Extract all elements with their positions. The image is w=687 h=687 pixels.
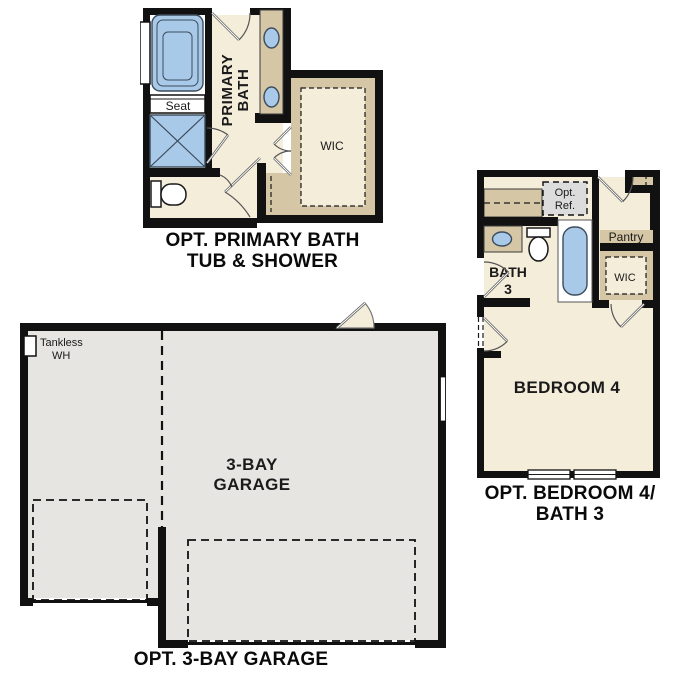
wall-segment bbox=[143, 168, 220, 177]
wall-segment bbox=[375, 70, 383, 223]
wall-segment bbox=[143, 8, 212, 15]
wall-segment bbox=[592, 177, 599, 302]
caption-line: OPT. PRIMARY BATH bbox=[135, 230, 390, 251]
toilet-tank bbox=[527, 228, 550, 237]
garage-door-threshold bbox=[188, 642, 415, 645]
wall-segment bbox=[20, 323, 28, 606]
toilet bbox=[151, 181, 186, 207]
caption-line: OPT. 3-BAY GARAGE bbox=[30, 649, 432, 670]
wic-shelf-ext bbox=[266, 173, 291, 215]
sink bbox=[264, 87, 279, 107]
wall-segment bbox=[650, 193, 660, 231]
caption-line: OPT. BEDROOM 4/ bbox=[470, 483, 670, 504]
toilet-tank bbox=[151, 181, 161, 207]
tankless-label-line2: WH bbox=[52, 350, 70, 362]
toilet-bowl bbox=[529, 237, 548, 261]
opt-ref-label-line2: Ref. bbox=[555, 200, 575, 212]
wall-segment bbox=[600, 243, 660, 252]
house-entry-door-swing bbox=[337, 303, 374, 328]
wall-segment bbox=[20, 598, 33, 606]
garage-bay-floor bbox=[27, 330, 162, 598]
opt-ref: Opt. Ref. bbox=[543, 182, 587, 215]
wall-segment bbox=[477, 170, 484, 258]
wall-segment bbox=[438, 323, 446, 648]
garage-main-floor bbox=[160, 330, 442, 640]
garage-label-line2: GARAGE bbox=[213, 475, 290, 494]
wall-segment bbox=[20, 323, 446, 331]
bath3-toilet bbox=[527, 228, 550, 261]
primary-bath-label-line2: BATH bbox=[235, 69, 252, 112]
wall-segment bbox=[158, 640, 188, 648]
tub bbox=[563, 227, 587, 295]
floorplan-canvas: Seat bbox=[0, 0, 687, 687]
shower bbox=[150, 115, 205, 167]
primary-bath-plan: Seat bbox=[140, 5, 390, 230]
wall-segment bbox=[592, 300, 609, 308]
bath3-tub bbox=[558, 220, 592, 302]
garage-label-line1: 3-BAY bbox=[226, 455, 278, 474]
tankless-box bbox=[24, 336, 36, 356]
wall-segment bbox=[484, 351, 501, 358]
garage-caption: OPT. 3-BAY GARAGE bbox=[30, 649, 432, 670]
bedroom4-bath3-plan: Opt. Ref. Pantry bbox=[470, 165, 665, 485]
primary-bath-caption: OPT. PRIMARY BATH TUB & SHOWER bbox=[135, 230, 390, 272]
wall-segment bbox=[283, 8, 291, 120]
pantry-label: Pantry bbox=[609, 230, 644, 244]
bath3-label-line2: 3 bbox=[504, 281, 512, 297]
wall-segment bbox=[257, 215, 383, 223]
bedroom4-label: BEDROOM 4 bbox=[514, 378, 621, 397]
bath3-sink bbox=[484, 226, 522, 252]
wall-segment bbox=[642, 300, 660, 308]
wall-segment bbox=[477, 217, 558, 226]
garage-door-threshold bbox=[33, 600, 147, 603]
wall-segment bbox=[257, 163, 266, 219]
caption-line: TUB & SHOWER bbox=[135, 251, 390, 272]
primary-bath-label-line1: PRIMARY bbox=[219, 54, 236, 127]
sink bbox=[493, 232, 512, 246]
wall-segment bbox=[143, 218, 257, 228]
bathtub bbox=[152, 15, 203, 91]
vanity bbox=[260, 10, 283, 114]
seat-label: Seat bbox=[166, 99, 191, 113]
wall-segment bbox=[158, 527, 166, 648]
counter bbox=[484, 189, 542, 217]
sink bbox=[264, 28, 279, 48]
wic: WIC bbox=[600, 251, 653, 300]
garage-plan: Tankless WH 3-BAY GARAGE bbox=[12, 295, 457, 657]
wall-segment bbox=[477, 298, 530, 307]
bedroom4-caption: OPT. BEDROOM 4/ BATH 3 bbox=[470, 483, 670, 525]
tankless-label-line1: Tankless bbox=[40, 337, 83, 349]
wall-segment bbox=[477, 348, 484, 478]
wic-label: WIC bbox=[320, 139, 344, 153]
wall-segment bbox=[291, 70, 383, 78]
window bbox=[441, 377, 446, 421]
wic-label: WIC bbox=[614, 272, 635, 284]
caption-line: BATH 3 bbox=[470, 504, 670, 525]
tub-seat: Seat bbox=[150, 95, 205, 113]
toilet-bowl bbox=[161, 184, 186, 205]
wall-segment bbox=[205, 8, 212, 170]
opt-ref-label-line1: Opt. bbox=[555, 187, 576, 199]
window bbox=[140, 22, 150, 84]
wall-segment bbox=[477, 170, 598, 177]
